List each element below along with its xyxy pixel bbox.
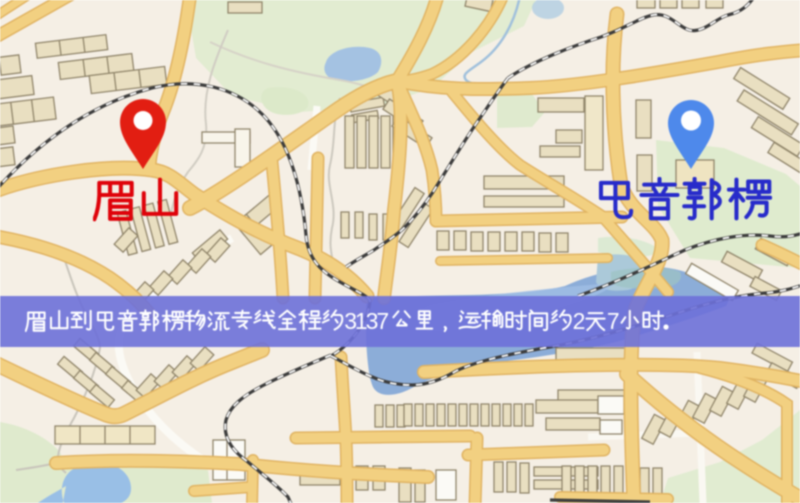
svg-text:2: 2 [573, 308, 586, 334]
svg-text:7: 7 [607, 308, 620, 334]
svg-text:3137: 3137 [344, 308, 389, 334]
